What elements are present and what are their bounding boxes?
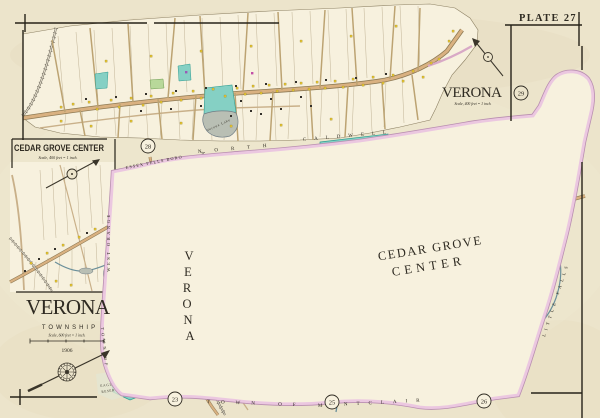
title-block-subtitle: TOWNSHIP xyxy=(42,325,98,331)
building-magenta xyxy=(185,71,187,73)
watershed-parcel xyxy=(95,72,108,89)
inset-title: CEDAR GROVE CENTER xyxy=(14,143,104,154)
svg-text:R: R xyxy=(183,281,192,295)
atlas-plate: Verona Lake CEDAR GROVE CENTER Scale, 40… xyxy=(0,0,600,418)
pond xyxy=(79,268,93,274)
svg-text:E: E xyxy=(184,265,192,279)
west-orange-label: WEST ORANGE xyxy=(106,212,111,272)
map-canvas: Verona Lake CEDAR GROVE CENTER Scale, 40… xyxy=(0,0,600,418)
lake-park xyxy=(204,85,236,114)
plate-ref-26: 26 xyxy=(481,398,488,405)
strip-map: Verona Lake xyxy=(23,4,478,141)
svg-text:N: N xyxy=(183,313,192,327)
plate-ref-29: 29 xyxy=(518,90,525,97)
watershed-parcel xyxy=(178,64,191,81)
svg-text:A: A xyxy=(185,329,194,343)
strip-title: VERONA xyxy=(442,85,506,101)
plate-number: PLATE 27 xyxy=(519,12,577,24)
title-block-year: 1906 xyxy=(62,348,73,354)
park-parcel xyxy=(150,79,164,89)
title-block-title: VERONA xyxy=(26,295,114,319)
plate-ref-28: 28 xyxy=(145,143,152,150)
building-magenta xyxy=(251,72,253,74)
plate-ref-23: 23 xyxy=(172,396,179,403)
plate-ref-25: 25 xyxy=(329,399,336,406)
svg-text:V: V xyxy=(184,249,193,263)
svg-text:O: O xyxy=(182,297,191,311)
